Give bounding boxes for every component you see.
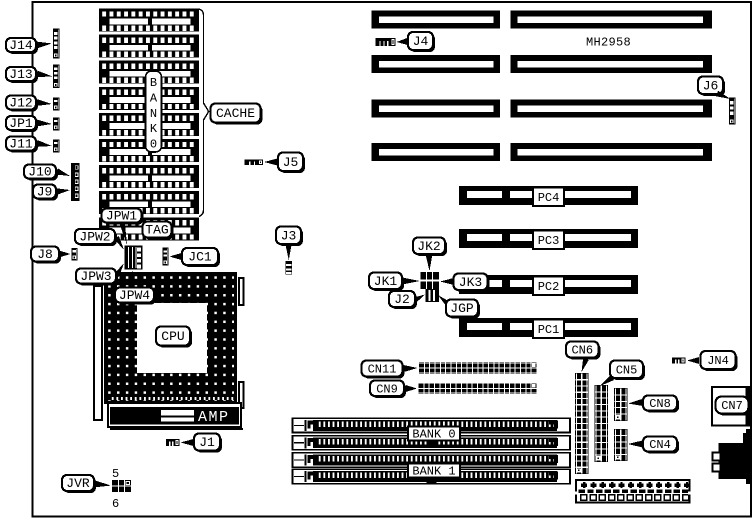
svg-text:J13: J13 [9, 67, 32, 82]
svg-text:J9: J9 [37, 185, 53, 200]
svg-text:BANK 1: BANK 1 [412, 465, 455, 479]
svg-text:J4: J4 [413, 34, 429, 49]
svg-text:BANK 0: BANK 0 [412, 428, 455, 442]
svg-text:J5: J5 [283, 155, 299, 170]
svg-text:K: K [150, 122, 158, 136]
svg-text:JGP: JGP [450, 301, 474, 316]
svg-text:CPU: CPU [161, 329, 184, 344]
svg-text:JP1: JP1 [9, 116, 33, 131]
svg-text:A: A [150, 91, 158, 105]
svg-text:J2: J2 [394, 292, 410, 307]
svg-text:CN5: CN5 [616, 363, 638, 377]
svg-text:PC3: PC3 [538, 234, 560, 248]
svg-text:AMP: AMP [198, 409, 230, 426]
svg-text:CN9: CN9 [376, 382, 398, 396]
svg-text:5: 5 [112, 467, 119, 481]
svg-text:J10: J10 [28, 165, 51, 180]
svg-text:CACHE: CACHE [216, 106, 255, 121]
svg-text:JC1: JC1 [188, 250, 212, 265]
svg-text:CN8: CN8 [649, 397, 671, 411]
svg-text:JPW1: JPW1 [106, 209, 137, 224]
svg-text:0: 0 [150, 138, 157, 152]
svg-text:JK2: JK2 [417, 239, 440, 254]
svg-text:JK3: JK3 [459, 275, 482, 290]
svg-text:J1: J1 [199, 435, 215, 450]
svg-text:J14: J14 [9, 38, 33, 53]
svg-text:PC2: PC2 [538, 280, 560, 294]
svg-text:B: B [150, 76, 157, 90]
svg-text:J11: J11 [9, 137, 33, 152]
svg-text:JPW2: JPW2 [79, 230, 110, 245]
svg-text:JK1: JK1 [374, 274, 398, 289]
svg-text:MH2958: MH2958 [586, 36, 631, 50]
svg-text:PC4: PC4 [538, 191, 560, 205]
svg-text:TAG: TAG [145, 223, 168, 238]
svg-text:J8: J8 [37, 247, 53, 262]
svg-text:JPW3: JPW3 [80, 269, 111, 284]
svg-text:CN6: CN6 [571, 344, 593, 358]
svg-text:6: 6 [112, 497, 119, 511]
svg-text:J6: J6 [703, 78, 719, 93]
svg-text:J3: J3 [281, 228, 297, 243]
svg-text:CN4: CN4 [649, 438, 671, 452]
svg-text:JPW4: JPW4 [119, 288, 150, 303]
svg-text:PC1: PC1 [538, 323, 560, 337]
svg-text:CN11: CN11 [368, 363, 397, 377]
svg-text:N: N [150, 107, 157, 121]
svg-text:JN4: JN4 [707, 354, 729, 368]
svg-text:CN7: CN7 [721, 399, 743, 413]
svg-text:JVR: JVR [66, 476, 90, 491]
svg-text:J12: J12 [9, 96, 32, 111]
